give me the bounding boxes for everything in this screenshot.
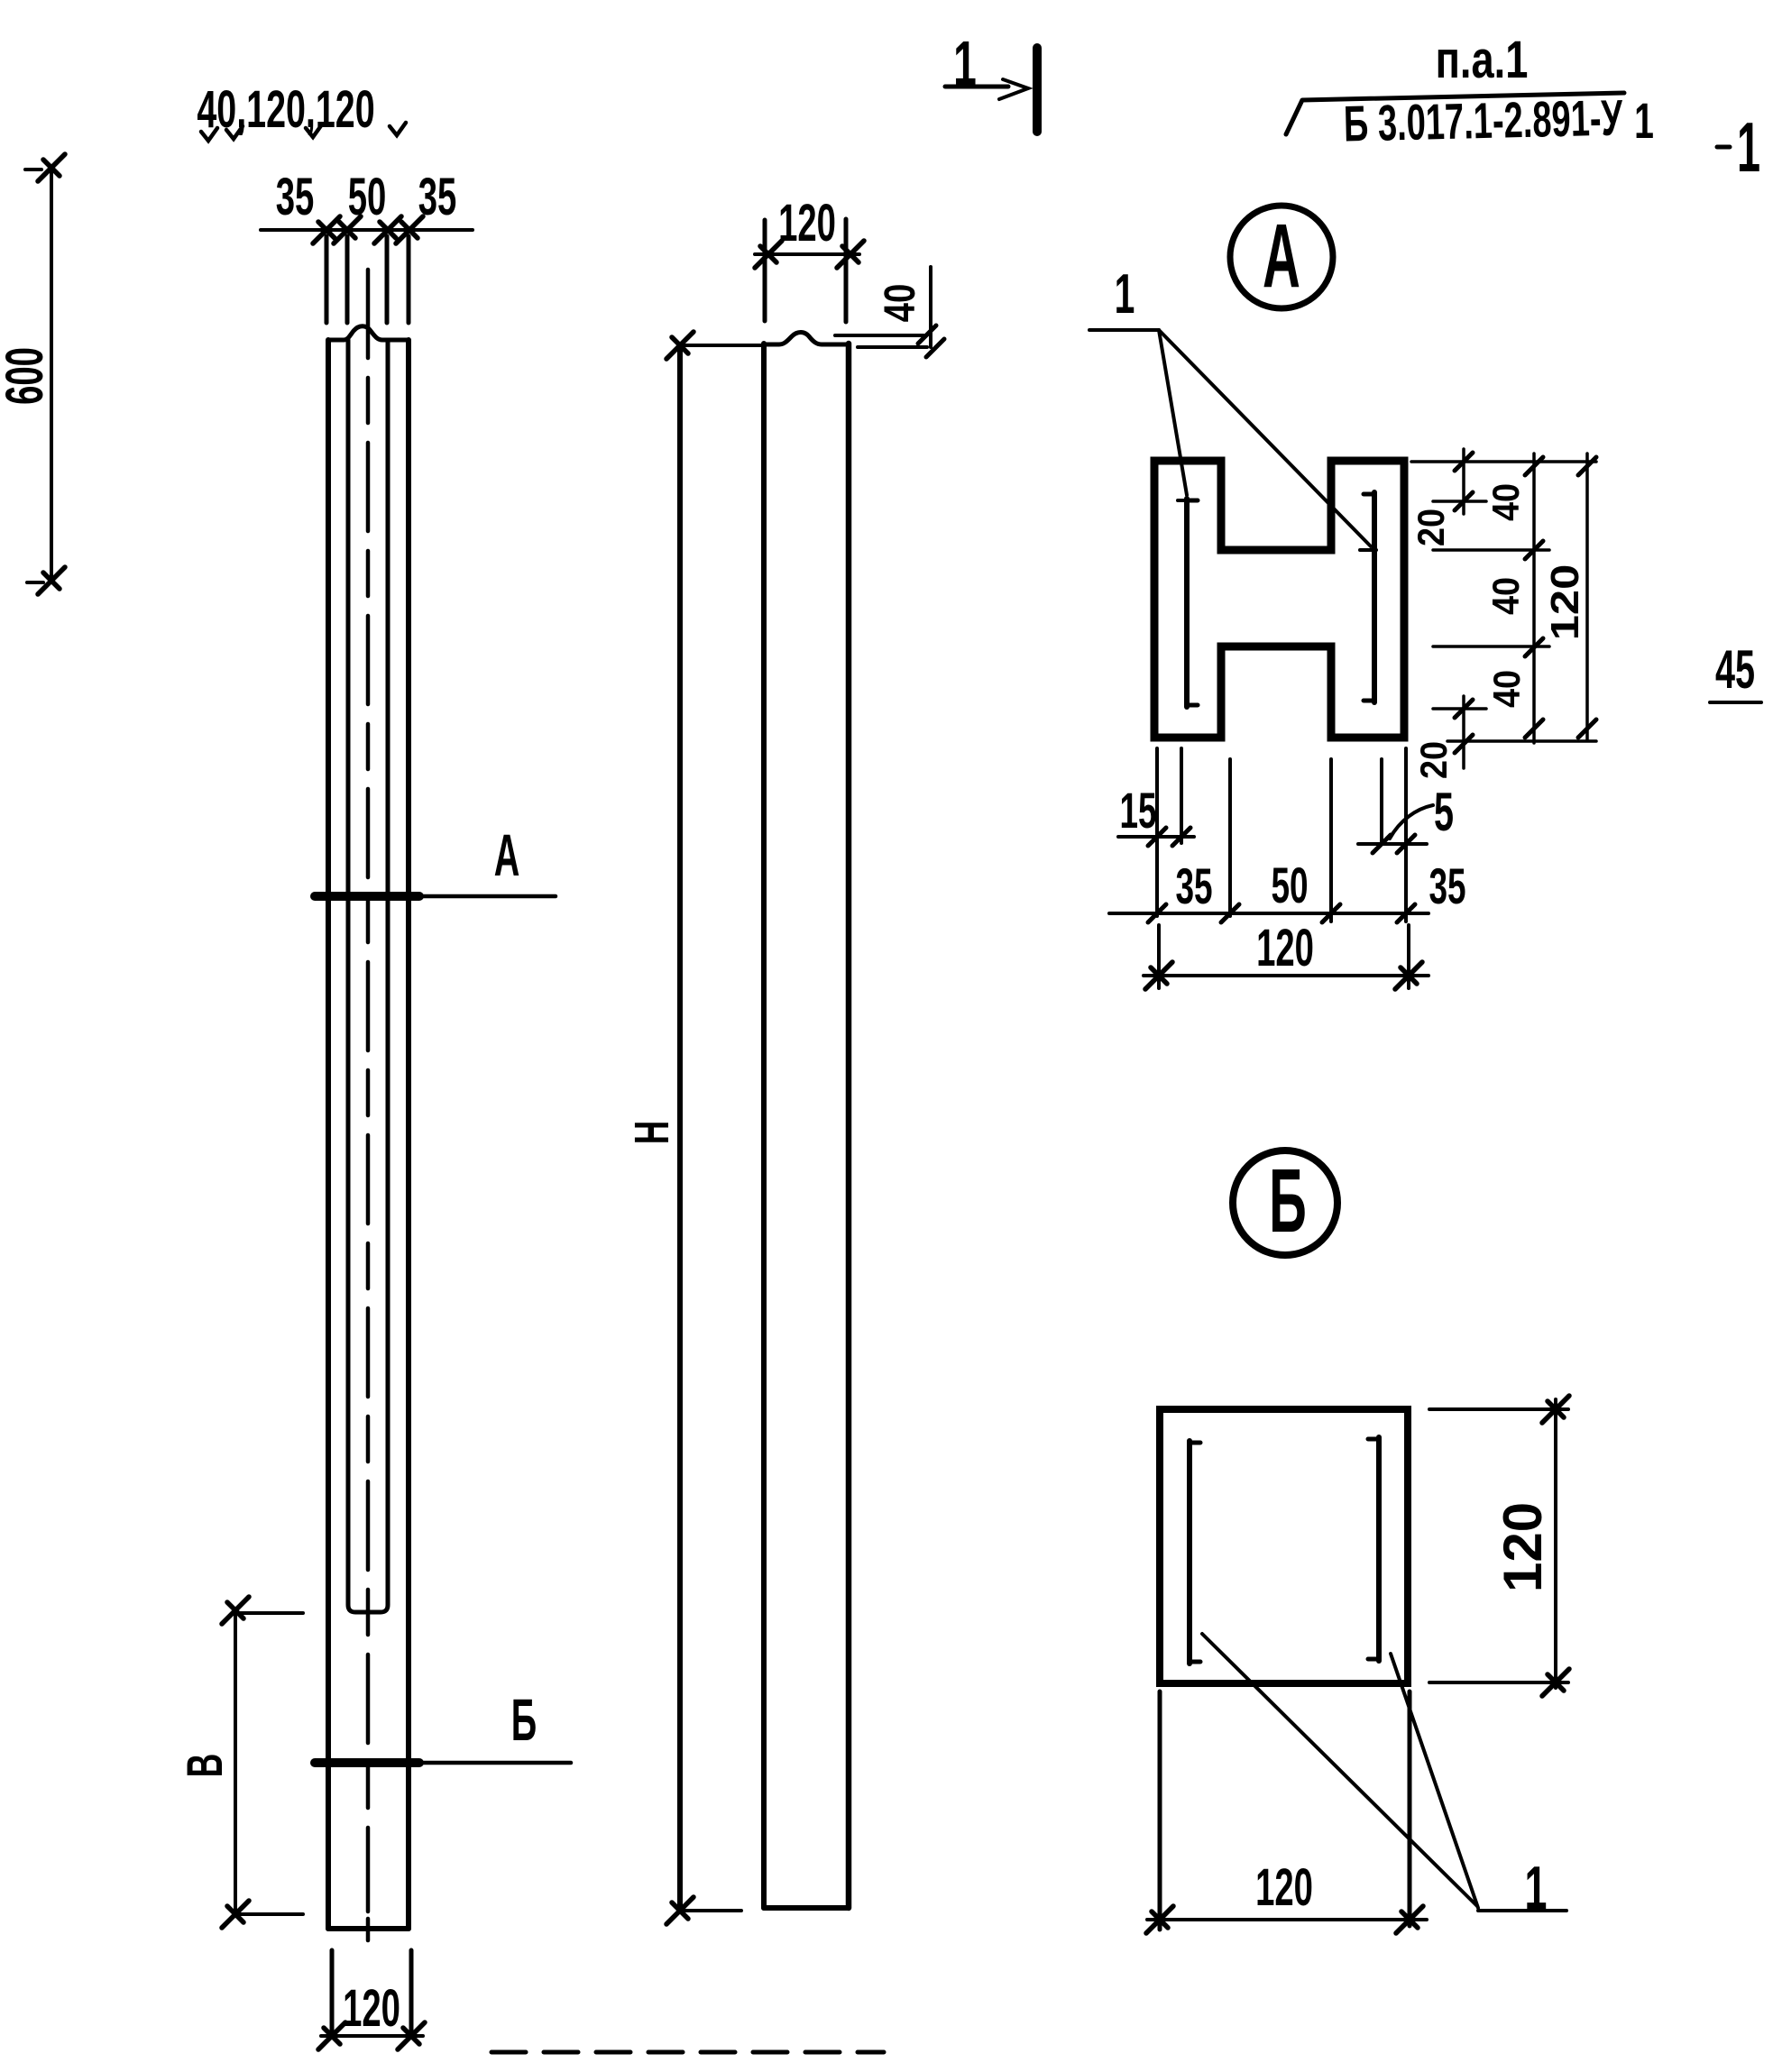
svg-text:120: 120	[1543, 564, 1587, 640]
svg-text:120: 120	[343, 1980, 400, 2038]
svg-text:120: 120	[1255, 1859, 1313, 1917]
svg-text:50: 50	[1271, 857, 1308, 914]
svg-text:120: 120	[778, 195, 836, 252]
svg-text:Н: Н	[624, 1121, 679, 1145]
svg-text:15: 15	[1119, 783, 1156, 839]
svg-text:35: 35	[1429, 858, 1465, 915]
svg-text:40: 40	[1485, 577, 1527, 615]
svg-text:1: 1	[1525, 1855, 1548, 1923]
svg-text:600: 600	[0, 347, 54, 405]
svg-text:45: 45	[1715, 639, 1755, 700]
svg-text:1: 1	[1115, 263, 1135, 326]
svg-text:40: 40	[1486, 670, 1528, 708]
svg-text:20: 20	[1410, 509, 1452, 546]
svg-text:20: 20	[1413, 741, 1455, 779]
svg-text:35: 35	[1175, 858, 1212, 915]
svg-text:Б: Б	[511, 1687, 537, 1754]
svg-text:п.а.1: п.а.1	[1436, 32, 1529, 90]
svg-text:Б 3.017.1-2.891-У: Б 3.017.1-2.891-У	[1343, 90, 1624, 152]
svg-text:35: 35	[276, 169, 315, 226]
svg-text:120: 120	[1493, 1502, 1553, 1592]
svg-text:А: А	[494, 822, 520, 889]
svg-text:1: 1	[1737, 108, 1760, 187]
svg-text:Б: Б	[1269, 1151, 1307, 1251]
svg-text:40: 40	[877, 284, 924, 323]
svg-text:5: 5	[1434, 782, 1454, 842]
svg-text:1: 1	[1634, 93, 1654, 150]
svg-text:50: 50	[348, 169, 387, 226]
svg-text:40,120,120: 40,120,120	[197, 79, 374, 138]
svg-text:40: 40	[1485, 483, 1527, 521]
svg-text:А: А	[1263, 206, 1300, 307]
svg-text:120: 120	[1256, 920, 1314, 977]
svg-text:В: В	[177, 1754, 234, 1778]
